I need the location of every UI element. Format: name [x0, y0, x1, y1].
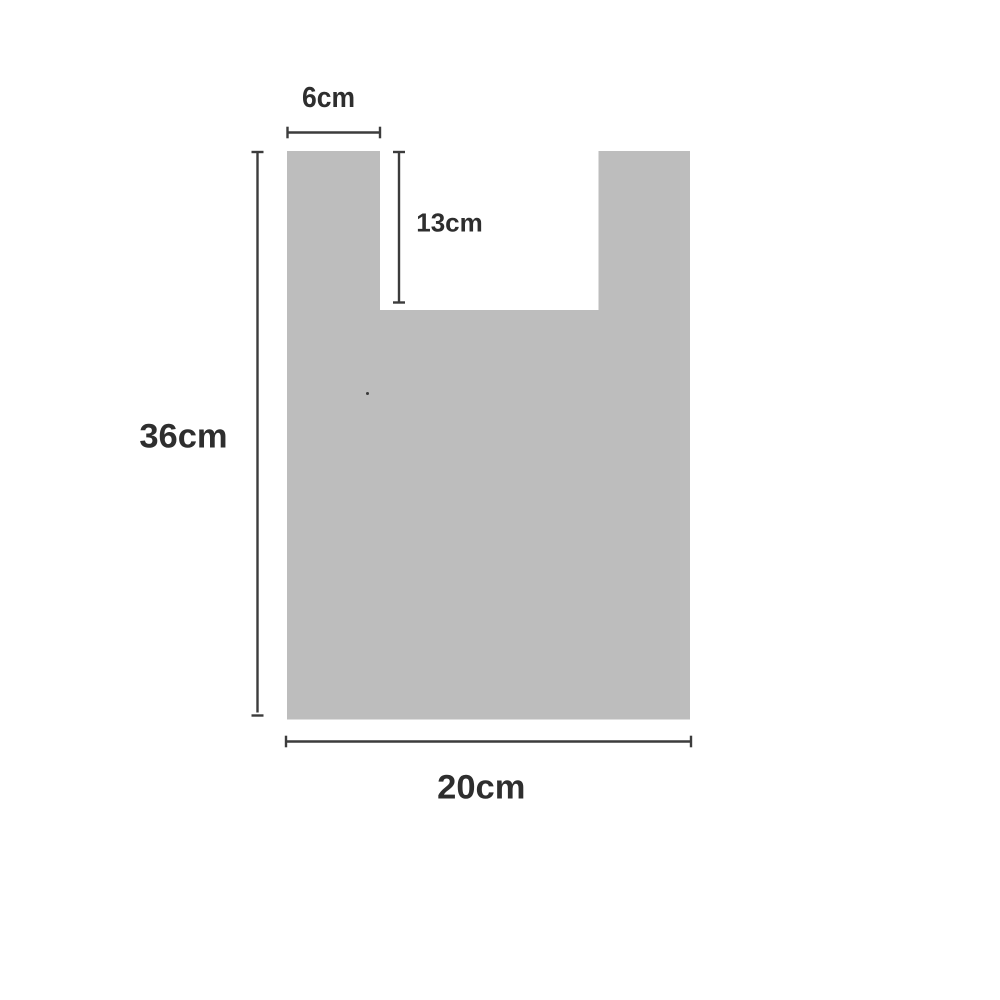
svg-text:20cm: 20cm	[437, 769, 525, 807]
svg-text:13cm: 13cm	[416, 208, 483, 238]
svg-text:36cm: 36cm	[139, 418, 227, 456]
svg-text:6cm: 6cm	[302, 82, 355, 114]
